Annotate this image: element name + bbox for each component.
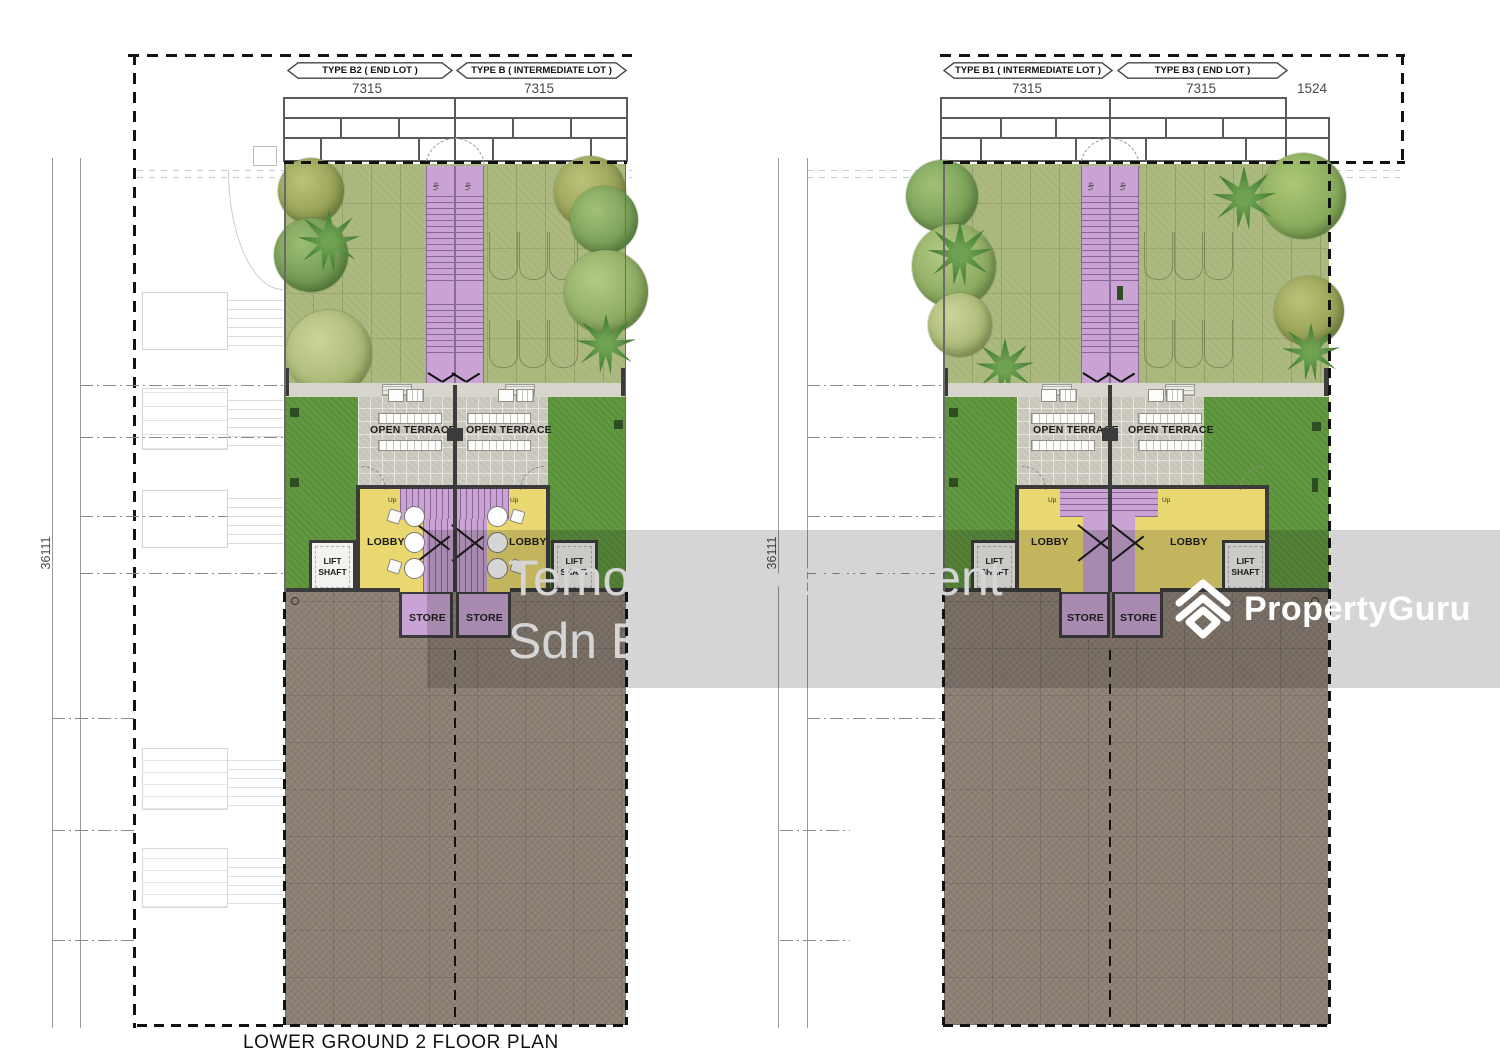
lift-shaft: LIFT SHAFT: [309, 540, 356, 594]
type-label-box: TYPE B3 ( END LOT ): [1117, 62, 1288, 79]
up-label: Up: [1162, 497, 1170, 504]
boundary-line: [128, 54, 632, 57]
stair: [1060, 489, 1109, 517]
boundary-line: [1329, 161, 1405, 164]
room-label-open-terrace: OPEN TERRACE: [1128, 424, 1214, 436]
walkway: [943, 383, 1329, 397]
ramp-up-label: Up: [1088, 182, 1095, 190]
tree-icon: [570, 186, 638, 254]
floor-plan-sheet: TYPE B2 ( END LOT ) TYPE B ( INTERMEDIAT…: [0, 0, 1500, 1061]
boundary-line: [1401, 54, 1404, 164]
type-label: TYPE B3 ( END LOT ): [1117, 62, 1288, 79]
dimension-value-vertical: 36111: [39, 523, 53, 583]
propertyguru-logo: PropertyGuru: [1172, 576, 1472, 642]
type-label-box: TYPE B2 ( END LOT ): [287, 62, 453, 79]
propertyguru-wordmark: PropertyGuru: [1244, 590, 1471, 629]
type-label-box: TYPE B ( INTERMEDIATE LOT ): [456, 62, 627, 79]
stair: [1109, 489, 1158, 517]
boundary-line: [133, 54, 136, 1028]
up-label: Up: [1048, 497, 1056, 504]
ramp-up-label: Up: [433, 182, 440, 190]
ramp-up-label: Up: [1120, 182, 1127, 190]
type-label: TYPE B1 ( INTERMEDIATE LOT ): [943, 62, 1113, 79]
tree-icon: [906, 160, 978, 232]
dimension-value: 1524: [1297, 81, 1327, 96]
type-label: TYPE B ( INTERMEDIATE LOT ): [456, 62, 627, 79]
up-label: Up: [510, 497, 518, 504]
dimension-value: 7315: [1012, 81, 1042, 96]
type-label-box: TYPE B1 ( INTERMEDIATE LOT ): [943, 62, 1113, 79]
room-label-lift-shaft: LIFT SHAFT: [312, 543, 353, 591]
dimension-value: 7315: [352, 81, 382, 96]
dimension-value: 7315: [524, 81, 554, 96]
ramp-up-label: Up: [465, 182, 472, 190]
room-label-open-terrace: OPEN TERRACE: [370, 424, 456, 436]
room-label-lobby: LOBBY: [367, 536, 405, 548]
up-label: Up: [388, 497, 396, 504]
boundary-line: [940, 54, 1405, 57]
type-label: TYPE B2 ( END LOT ): [287, 62, 453, 79]
tree-icon: [928, 293, 992, 357]
sheet-title: LOWER GROUND 2 FLOOR PLAN: [243, 1032, 559, 1054]
tree-icon: [278, 158, 344, 224]
propertyguru-chevron-icon: [1172, 576, 1234, 642]
tree-icon: [1260, 153, 1346, 239]
room-label-open-terrace: OPEN TERRACE: [466, 424, 552, 436]
dimension-value: 7315: [1186, 81, 1216, 96]
